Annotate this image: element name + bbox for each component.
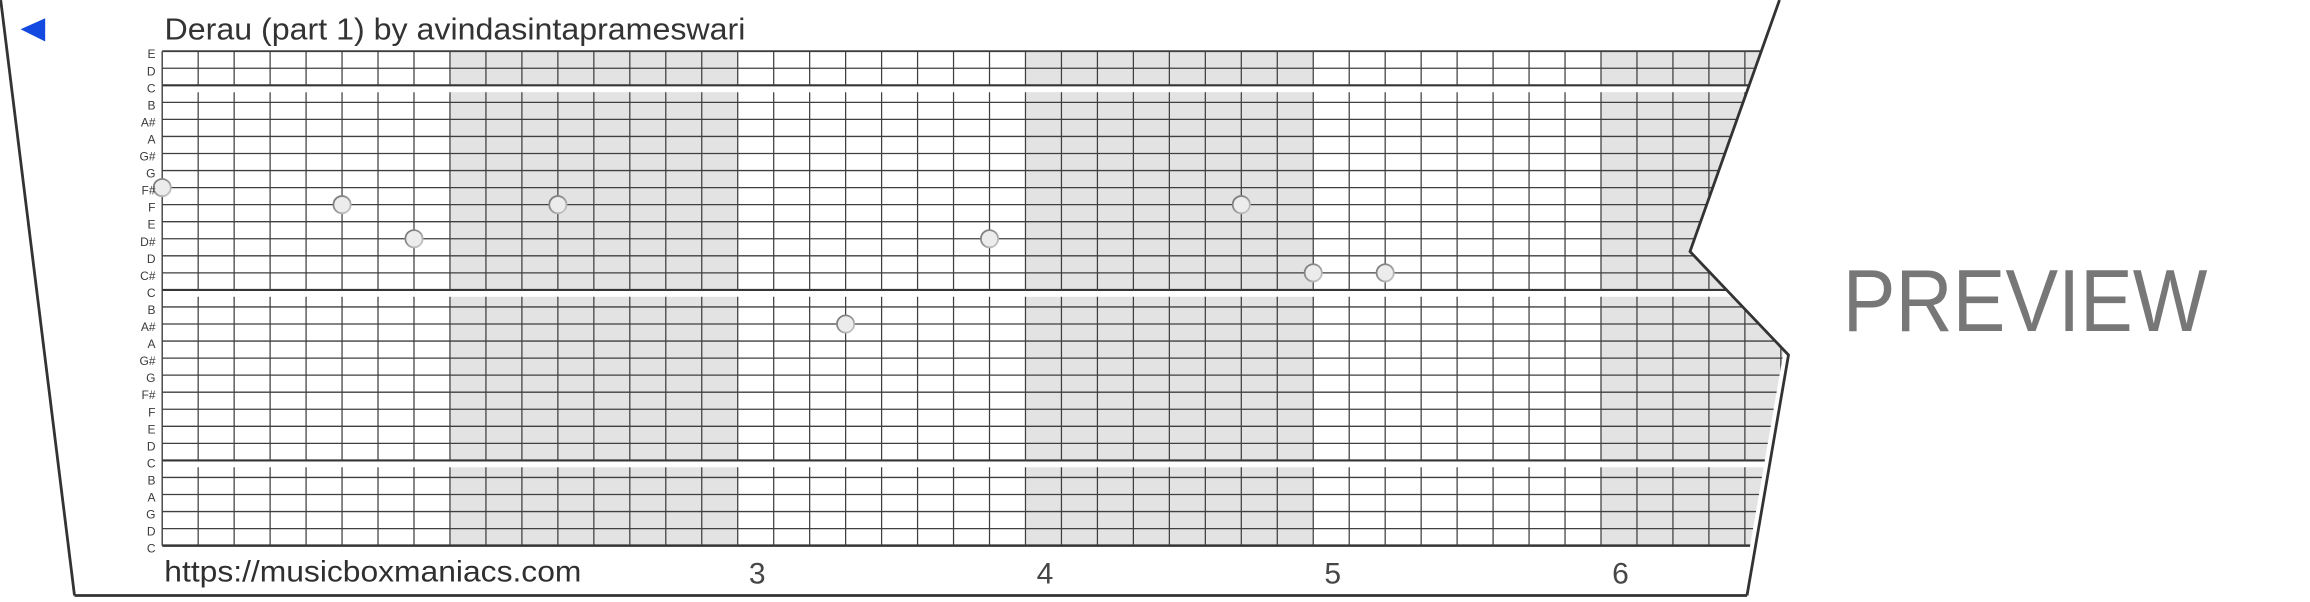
svg-text:G: G [146,167,155,181]
svg-text:https://musicboxmaniacs.com: https://musicboxmaniacs.com [164,555,581,588]
svg-text:A#: A# [141,115,156,129]
svg-text:E: E [147,47,155,61]
svg-text:E: E [147,422,155,436]
svg-text:E: E [147,218,155,232]
svg-text:3: 3 [749,558,766,591]
svg-text:C: C [147,81,156,95]
svg-text:F: F [148,201,155,215]
svg-text:F#: F# [141,388,155,402]
svg-text:5: 5 [1324,558,1341,591]
svg-text:B: B [147,303,155,317]
svg-text:C: C [147,456,156,470]
svg-text:G: G [146,371,155,385]
svg-text:G#: G# [139,354,155,368]
svg-text:C#: C# [140,269,156,283]
svg-text:D: D [147,252,156,266]
svg-text:C: C [147,542,156,556]
svg-text:A: A [147,491,155,505]
svg-text:G#: G# [139,150,155,164]
svg-text:F#: F# [141,184,155,198]
svg-text:6: 6 [1612,558,1629,591]
svg-text:A: A [147,132,155,146]
svg-text:C: C [147,286,156,300]
svg-text:D#: D# [140,235,156,249]
svg-text:4: 4 [1037,558,1054,591]
svg-text:D: D [147,64,156,78]
svg-text:A#: A# [141,320,156,334]
svg-text:PREVIEW: PREVIEW [1843,251,2208,350]
svg-text:D: D [147,525,156,539]
svg-text:B: B [147,98,155,112]
svg-text:G: G [146,508,155,522]
svg-text:A: A [147,337,155,351]
svg-text:D: D [147,439,156,453]
svg-text:B: B [147,473,155,487]
svg-text:Derau (part 1) by avindasintap: Derau (part 1) by avindasintaprameswari [165,11,746,46]
svg-text:F: F [148,405,155,419]
